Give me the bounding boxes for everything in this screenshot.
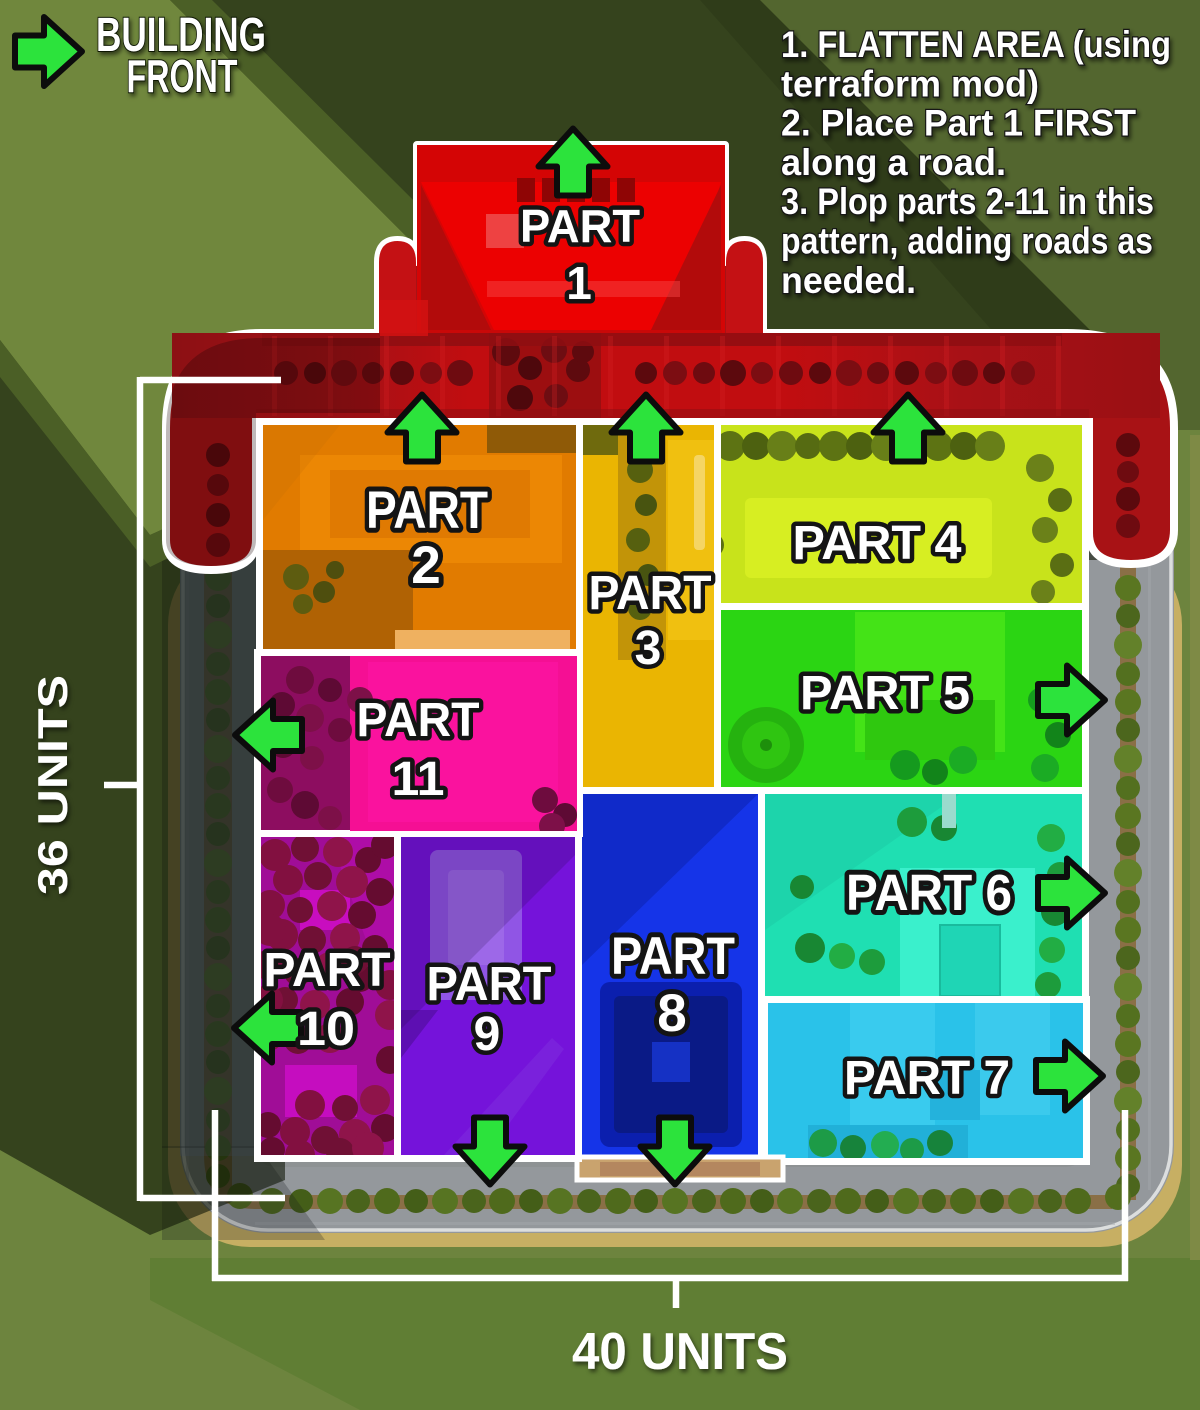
svg-text:PART: PART <box>357 694 480 747</box>
svg-text:9: 9 <box>474 1008 501 1061</box>
svg-text:PART: PART <box>589 567 712 620</box>
svg-text:8: 8 <box>657 984 686 1043</box>
svg-text:PART 6: PART 6 <box>846 864 1012 921</box>
svg-text:FRONT: FRONT <box>127 50 238 102</box>
svg-text:40 UNITS: 40 UNITS <box>572 1323 788 1381</box>
svg-text:1. FLATTEN AREA (using: 1. FLATTEN AREA (using <box>781 24 1171 65</box>
svg-text:terraform mod): terraform mod) <box>781 63 1039 104</box>
svg-text:PART: PART <box>427 958 552 1011</box>
svg-text:PART: PART <box>520 200 640 252</box>
svg-text:PART 4: PART 4 <box>793 517 962 570</box>
svg-text:3: 3 <box>635 622 662 675</box>
svg-text:PART: PART <box>366 481 488 540</box>
svg-text:PART 5: PART 5 <box>800 667 970 720</box>
svg-text:11: 11 <box>392 753 445 806</box>
svg-text:needed.: needed. <box>781 260 916 301</box>
svg-text:2. Place Part 1 FIRST: 2. Place Part 1 FIRST <box>781 103 1136 144</box>
svg-text:10: 10 <box>297 1003 355 1056</box>
svg-text:PART: PART <box>264 944 391 997</box>
svg-text:1: 1 <box>566 257 592 309</box>
svg-text:2: 2 <box>411 536 440 595</box>
svg-text:36 UNITS: 36 UNITS <box>29 675 76 895</box>
svg-text:3. Plop parts 2-11 in this: 3. Plop parts 2-11 in this <box>781 181 1154 222</box>
svg-text:along a road.: along a road. <box>781 142 1006 183</box>
svg-text:PART: PART <box>611 927 735 986</box>
svg-text:PART 7: PART 7 <box>844 1052 1010 1105</box>
svg-text:pattern, adding roads as: pattern, adding roads as <box>781 221 1153 262</box>
